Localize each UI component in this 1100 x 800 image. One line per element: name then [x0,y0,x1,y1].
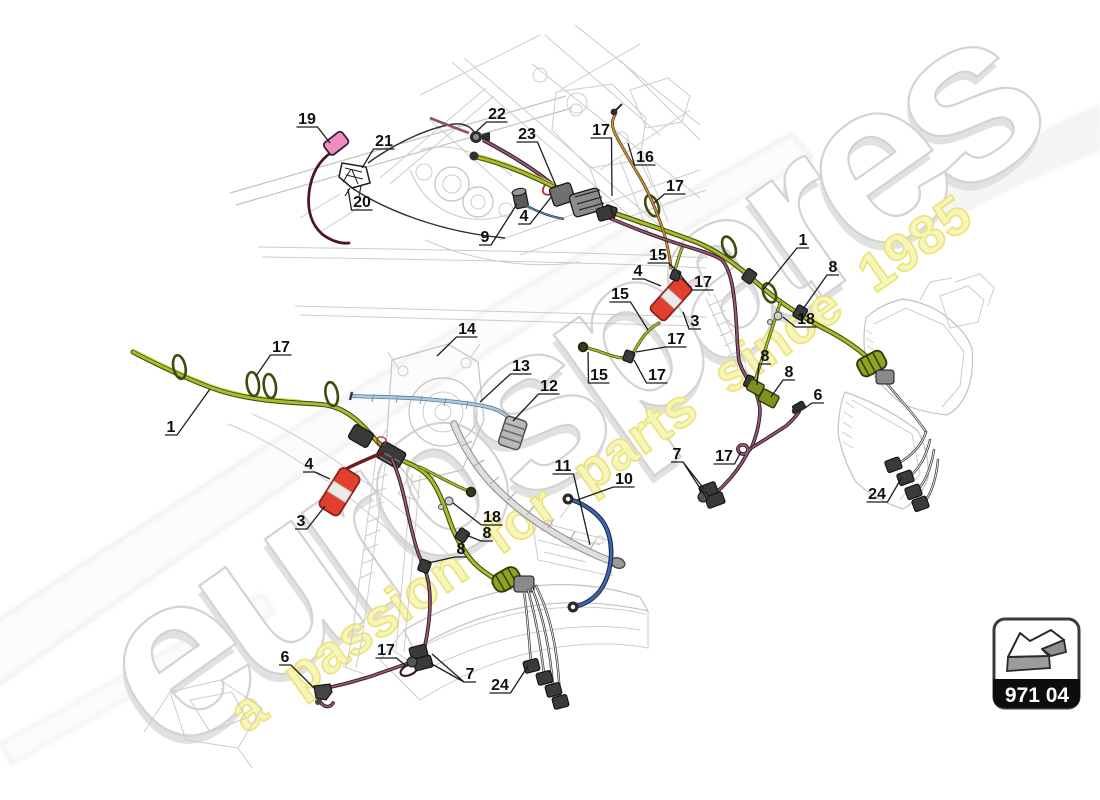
svg-text:4: 4 [305,456,314,473]
svg-text:18: 18 [797,311,815,328]
svg-text:3: 3 [691,313,700,330]
svg-text:971 04: 971 04 [1005,684,1070,707]
svg-text:4: 4 [634,263,643,280]
svg-text:9: 9 [481,229,490,246]
svg-text:15: 15 [611,286,629,303]
svg-text:17: 17 [694,274,712,291]
svg-text:6: 6 [281,649,290,666]
svg-text:23: 23 [518,126,536,143]
svg-text:8: 8 [829,259,838,276]
svg-text:7: 7 [673,446,682,463]
svg-text:8: 8 [785,364,794,381]
svg-text:10: 10 [615,471,633,488]
svg-text:15: 15 [649,247,667,264]
svg-text:16: 16 [636,149,654,166]
svg-text:15: 15 [590,367,608,384]
svg-text:13: 13 [512,358,530,375]
svg-text:21: 21 [375,133,393,150]
svg-text:11: 11 [555,458,572,475]
svg-text:14: 14 [458,321,476,338]
svg-text:17: 17 [592,122,610,139]
svg-text:7: 7 [466,666,475,683]
svg-text:6: 6 [814,387,823,404]
svg-text:17: 17 [715,448,733,465]
svg-text:24: 24 [491,677,509,694]
svg-text:22: 22 [488,106,506,123]
svg-text:17: 17 [648,367,666,384]
svg-text:1: 1 [799,232,808,249]
svg-text:18: 18 [483,509,501,526]
svg-text:19: 19 [298,111,316,128]
svg-text:17: 17 [377,642,395,659]
svg-text:12: 12 [540,378,558,395]
svg-text:4: 4 [520,208,529,225]
svg-text:17: 17 [667,331,685,348]
svg-text:17: 17 [666,178,684,195]
svg-text:20: 20 [353,194,371,211]
svg-text:24: 24 [868,486,886,503]
svg-text:3: 3 [297,513,306,530]
svg-text:1: 1 [167,419,176,436]
svg-text:17: 17 [272,339,290,356]
svg-text:8: 8 [761,348,770,365]
svg-text:8: 8 [483,525,492,542]
svg-text:8: 8 [457,541,466,558]
